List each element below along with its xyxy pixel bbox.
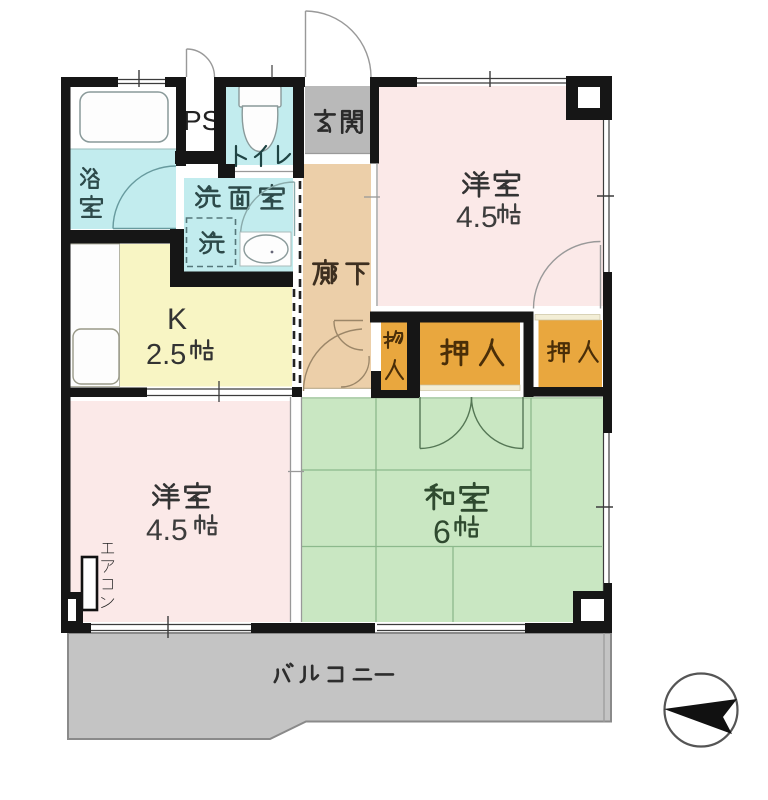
svg-text:K: K xyxy=(167,303,187,336)
svg-text:2.5: 2.5 xyxy=(146,339,186,371)
svg-text:4.5: 4.5 xyxy=(456,201,498,234)
svg-text:4.5: 4.5 xyxy=(146,514,188,547)
svg-text:6: 6 xyxy=(433,514,451,550)
